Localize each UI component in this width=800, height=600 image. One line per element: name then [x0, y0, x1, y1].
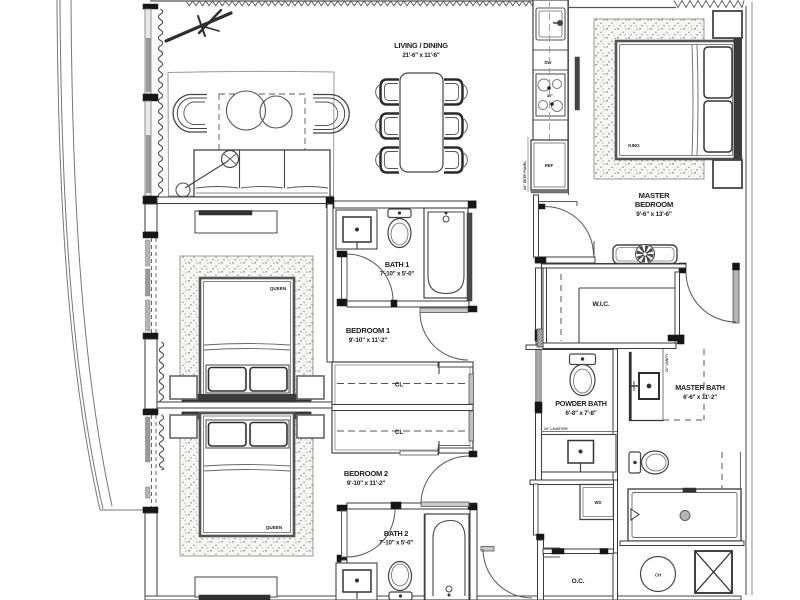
svg-text:9'-10" x 11'-2": 9'-10" x 11'-2": [349, 337, 388, 344]
svg-text:22" VANITY: 22" VANITY: [665, 353, 669, 372]
svg-text:LIVING / DINING: LIVING / DINING: [394, 41, 448, 50]
svg-text:QUEEN: QUEEN: [270, 286, 287, 291]
svg-text:REF: REF: [545, 163, 554, 168]
svg-text:BEDROOM: BEDROOM: [635, 200, 673, 209]
svg-text:O.C.: O.C.: [572, 578, 585, 585]
svg-text:QUEEN: QUEEN: [266, 525, 283, 530]
svg-text:WD: WD: [595, 500, 602, 505]
svg-text:BEDROOM 1: BEDROOM 1: [346, 326, 391, 335]
svg-text:CL: CL: [395, 382, 403, 389]
svg-text:DW: DW: [545, 60, 552, 65]
svg-text:CL: CL: [395, 429, 403, 436]
svg-text:21'-6" x 11'-6": 21'-6" x 11'-6": [402, 52, 439, 59]
svg-text:9'-6" x 13'-6": 9'-6" x 13'-6": [636, 211, 672, 218]
svg-text:KING: KING: [628, 143, 640, 148]
svg-text:6'-6" x 11'-2": 6'-6" x 11'-2": [683, 394, 717, 401]
svg-text:CH: CH: [655, 573, 661, 578]
svg-text:BEDROOM 2: BEDROOM 2: [344, 469, 388, 478]
svg-text:24" LAVATORY: 24" LAVATORY: [544, 427, 569, 431]
svg-text:BATH 2: BATH 2: [384, 529, 408, 538]
svg-text:24" DEEP PANEL: 24" DEEP PANEL: [523, 160, 527, 190]
svg-text:6'-8" x 7'-8": 6'-8" x 7'-8": [566, 410, 597, 417]
svg-text:9'-10" x 11'-2": 9'-10" x 11'-2": [347, 480, 386, 487]
svg-text:MASTER BATH: MASTER BATH: [675, 383, 725, 392]
svg-text:30": 30": [547, 93, 553, 98]
svg-text:POWDER BATH: POWDER BATH: [555, 399, 607, 408]
svg-text:BATH 1: BATH 1: [385, 260, 409, 269]
svg-text:7'-10" x 5'-0": 7'-10" x 5'-0": [379, 540, 413, 547]
svg-text:W.I.C.: W.I.C.: [592, 301, 610, 308]
svg-text:MASTER: MASTER: [639, 191, 671, 200]
